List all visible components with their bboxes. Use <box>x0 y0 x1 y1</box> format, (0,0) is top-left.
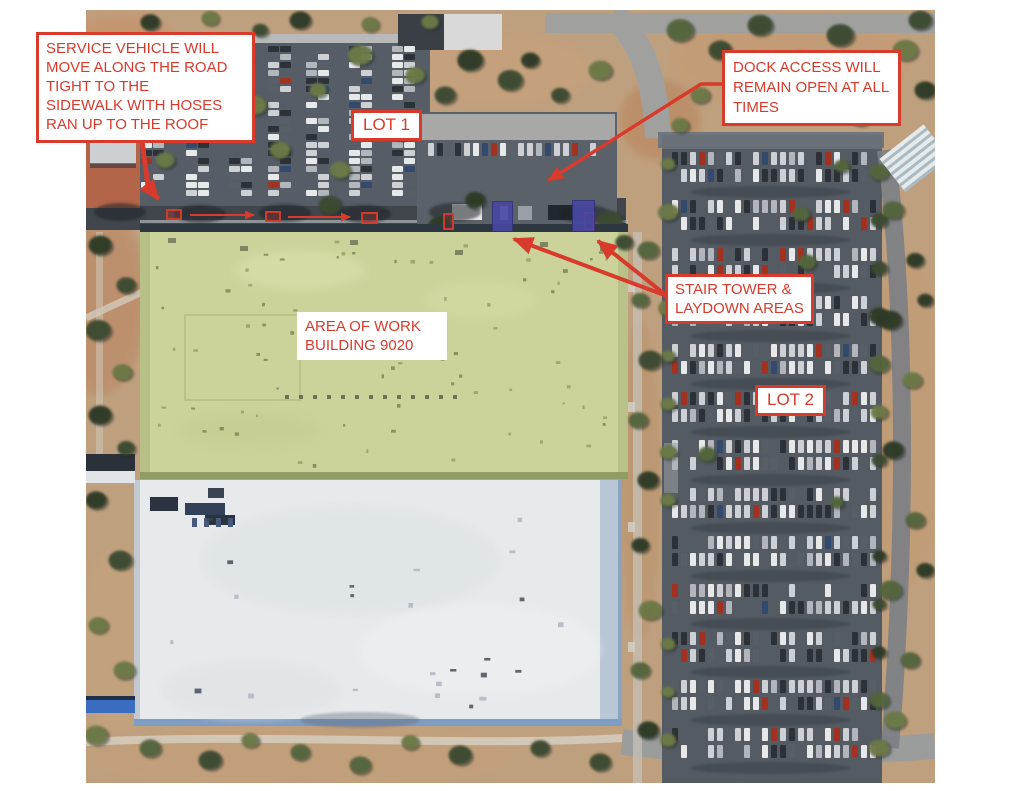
lot-1-label: LOT 1 <box>351 110 422 141</box>
service-vehicle-marker-2 <box>265 211 281 222</box>
dock-access-note: DOCK ACCESS WILL REMAIN OPEN AT ALL TIME… <box>722 50 901 126</box>
service-vehicle-marker-3 <box>361 212 378 224</box>
dock-access-arrow <box>549 84 722 180</box>
stair-tower-arrow-1 <box>514 239 667 296</box>
dock-access-marker-1 <box>443 213 454 230</box>
stair-tower-marker-1 <box>492 201 513 232</box>
lot-2-label: LOT 2 <box>755 385 826 416</box>
stair-tower-marker-2 <box>572 200 595 232</box>
stair-tower-arrow-2 <box>598 241 667 296</box>
stair-tower-note: STAIR TOWER & LAYDOWN AREAS <box>665 274 814 324</box>
service-vehicle-marker-1 <box>166 209 182 220</box>
service-route-arrow <box>141 134 158 199</box>
site-logistics-plan: SERVICE VEHICLE WILL MOVE ALONG THE ROAD… <box>0 0 1024 791</box>
area-of-work-note: AREA OF WORK BUILDING 9020 <box>297 312 447 360</box>
service-vehicle-note: SERVICE VEHICLE WILL MOVE ALONG THE ROAD… <box>36 32 255 143</box>
